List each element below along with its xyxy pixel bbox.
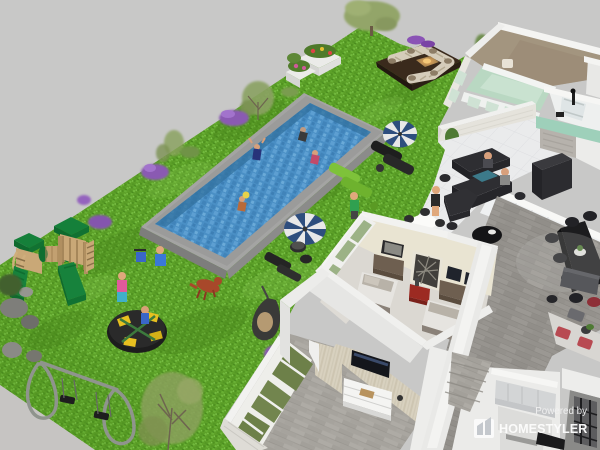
svg-text:HOMESTYLER: HOMESTYLER: [499, 422, 587, 436]
svg-text:Powered by: Powered by: [535, 406, 587, 417]
